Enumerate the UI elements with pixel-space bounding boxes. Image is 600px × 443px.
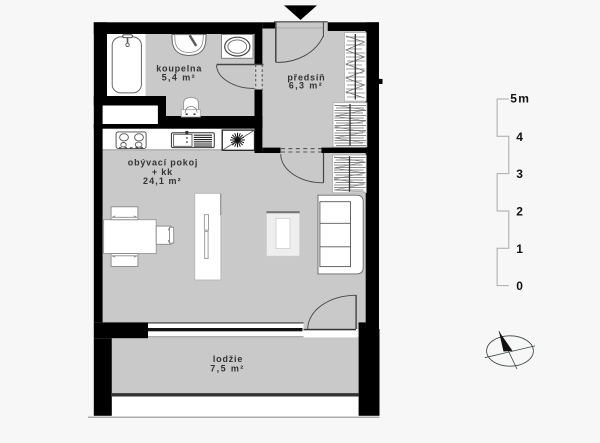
svg-text:4: 4 <box>516 130 524 144</box>
svg-text:lodžie: lodžie <box>213 354 243 364</box>
svg-text:3: 3 <box>516 167 524 181</box>
svg-text:7,5 m²: 7,5 m² <box>210 364 244 374</box>
svg-text:5m: 5m <box>510 92 530 106</box>
svg-text:0: 0 <box>516 279 524 293</box>
svg-text:6,3 m²: 6,3 m² <box>289 80 323 90</box>
svg-text:2: 2 <box>516 205 524 219</box>
svg-text:24,1 m²: 24,1 m² <box>143 176 182 186</box>
svg-text:5,4 m²: 5,4 m² <box>162 73 196 83</box>
svg-text:1: 1 <box>516 242 524 256</box>
